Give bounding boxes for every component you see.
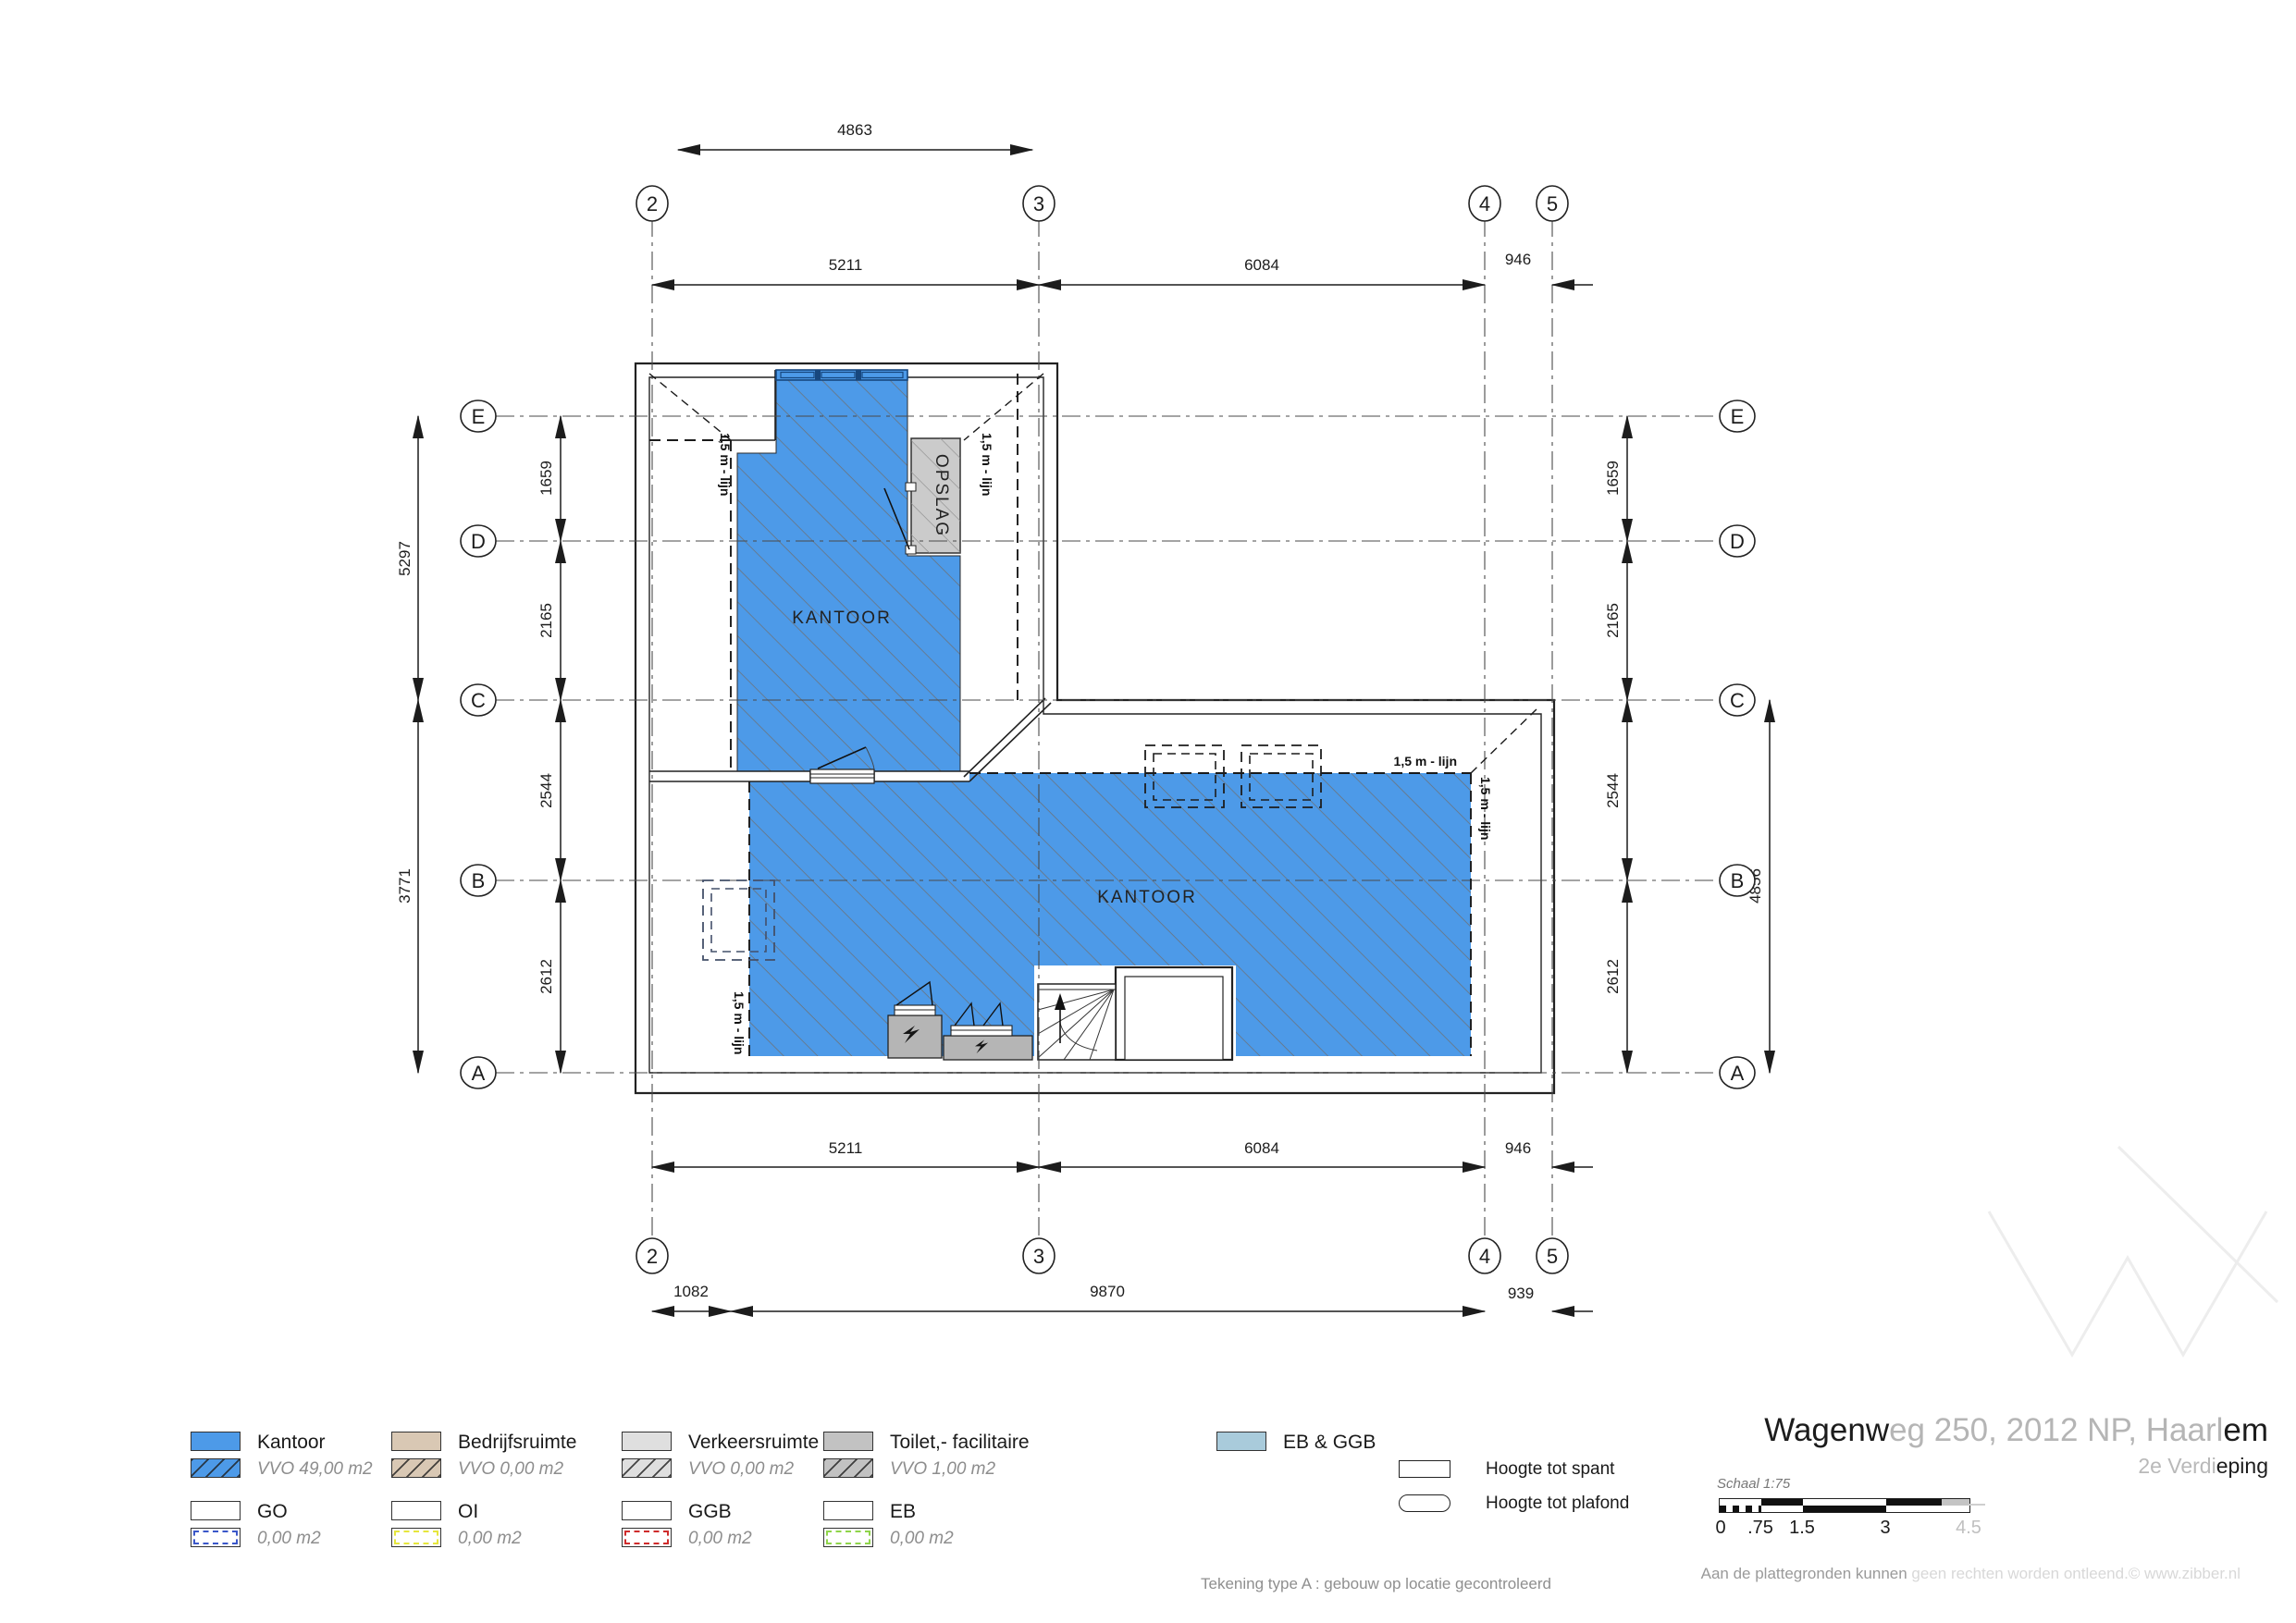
svg-text:5211: 5211 [829,256,863,274]
legend-label-hoogte-spant: Hoogte tot spant [1486,1459,1614,1480]
svg-text:5: 5 [1547,1245,1558,1268]
svg-text:B: B [472,869,486,892]
svg-text:946: 946 [1505,251,1531,268]
svg-text:1659: 1659 [1604,461,1622,496]
svg-text:2612: 2612 [1604,959,1622,994]
stairs [1038,984,1116,1060]
legend-swatch-eb-ggb [1216,1432,1266,1451]
scale-tick: 4.5 [1956,1518,1981,1539]
hoogte-plafond-symbol [1399,1494,1450,1512]
rights-note-part: Aan de plattegronden kunnen [1701,1565,1907,1582]
svg-text:B: B [1731,869,1745,892]
legend-label-kantoor: Kantoor [257,1432,326,1454]
svg-text:6084: 6084 [1244,1139,1279,1157]
legend-value-oi: 0,00 m2 [458,1529,522,1549]
legend-swatch-go [191,1501,241,1520]
line-label-15m: 1,5 m - lijn [1394,754,1457,768]
svg-text:1082: 1082 [673,1283,709,1300]
legend-label-eb-ggb: EB & GGB [1283,1432,1376,1454]
svg-text:5297: 5297 [396,541,414,576]
legend-swatch-go-value [191,1528,241,1547]
svg-text:3771: 3771 [396,868,414,904]
legend-value-toilet-vvo: VVO 1,00 m2 [890,1459,995,1480]
svg-text:9870: 9870 [1090,1283,1125,1300]
hoogte-spant-symbol [1399,1460,1450,1478]
legend-swatch-ggb [622,1501,672,1520]
svg-text:946: 946 [1505,1139,1531,1157]
room-label-opslag: OPSLAG [932,454,951,537]
scale-bar-tail [1969,1504,1985,1506]
legend-value-ggb: 0,00 m2 [688,1529,752,1549]
svg-text:6084: 6084 [1244,256,1279,274]
svg-text:4863: 4863 [837,121,872,139]
title-part: Wagenw [1764,1412,1889,1448]
legend-swatch-kantoor [191,1432,241,1451]
floorplan-page: KANTOOR KANTOOR OPSLAG 1,5 m - lijn 1,5 … [0,0,2296,1623]
legend-swatch-verkeersruimte [622,1432,672,1451]
svg-text:3: 3 [1033,1245,1044,1268]
legend-swatch-ggb-value [622,1528,672,1547]
svg-text:D: D [1730,530,1745,553]
legend-swatch-bedrijfsruimte-vvo [391,1458,441,1478]
legend-label-ggb: GGB [688,1501,732,1523]
legend-label-bedrijfsruimte: Bedrijfsruimte [458,1432,576,1454]
floorplan-drawing: KANTOOR KANTOOR OPSLAG 1,5 m - lijn 1,5 … [0,0,2296,1359]
legend-swatch-eb-value [823,1528,873,1547]
page-title: Wagenweg 250, 2012 NP, Haarlem [1764,1412,2268,1449]
svg-text:2: 2 [647,192,658,215]
svg-text:5211: 5211 [829,1139,863,1157]
legend-label-verkeersruimte: Verkeersruimte [688,1432,819,1454]
legend-swatch-kantoor-vvo [191,1458,241,1478]
scale-label: Schaal 1:75 [1717,1476,1790,1492]
svg-text:2: 2 [647,1245,658,1268]
legend-label-go: GO [257,1501,288,1523]
zibber-watermark [1989,1147,2277,1355]
line-label-15m: 1,5 m - lijn [732,991,747,1054]
room-label-kantoor-lower: KANTOOR [1097,888,1197,907]
title-part: eg 250, 2012 NP, Haarl [1889,1412,2223,1448]
drawing-type-note: Tekening type A : gebouw op locatie geco… [1201,1575,1551,1593]
line-label-15m: 1,5 m - lijn [1478,777,1493,840]
legend-swatch-eb [823,1501,873,1520]
title-part: em [2223,1412,2268,1448]
svg-text:2612: 2612 [537,959,555,994]
svg-text:2165: 2165 [537,603,555,638]
svg-text:939: 939 [1508,1285,1534,1302]
svg-text:C: C [471,689,486,712]
svg-text:4: 4 [1479,1245,1490,1268]
svg-text:2544: 2544 [1604,773,1622,808]
scale-tick: 3 [1880,1518,1890,1539]
legend-label-hoogte-plafond: Hoogte tot plafond [1486,1494,1629,1514]
room-label-kantoor-upper: KANTOOR [792,609,892,628]
legend-value-eb: 0,00 m2 [890,1529,954,1549]
legend-swatch-toilet [823,1432,873,1451]
subtitle-part: eping [2216,1454,2268,1478]
svg-text:2544: 2544 [537,773,555,808]
svg-text:A: A [1731,1062,1745,1085]
rights-note-part: geen rechten worden ontleend. [1907,1565,2129,1582]
svg-text:C: C [1730,689,1745,712]
legend-value-go: 0,00 m2 [257,1529,321,1549]
page-subtitle: 2e Verdieping [2138,1454,2268,1479]
scale-tick: 0 [1715,1518,1725,1539]
svg-text:5: 5 [1547,192,1558,215]
svg-text:E: E [1731,405,1745,428]
stair-core [1034,965,1236,1060]
window-top [776,370,907,380]
legend-swatch-toilet-vvo [823,1458,873,1478]
legend-value-kantoor-vvo: VVO 49,00 m2 [257,1459,373,1480]
svg-text:2165: 2165 [1604,603,1622,638]
legend-swatch-verkeersruimte-vvo [622,1458,672,1478]
subtitle-part: 2e Verdi [2138,1454,2216,1478]
line-label-15m: 1,5 m - lijn [718,433,733,496]
legend-value-bedrijfsruimte-vvo: VVO 0,00 m2 [458,1459,563,1480]
legend-value-verkeersruimte-vvo: VVO 0,00 m2 [688,1459,794,1480]
svg-text:3: 3 [1033,192,1044,215]
legend-swatch-oi [391,1501,441,1520]
legend-label-toilet: Toilet,- facilitaire [890,1432,1030,1454]
scale-tick: 1.5 [1789,1518,1815,1539]
svg-text:E: E [472,405,486,428]
scale-tick: .75 [1747,1518,1773,1539]
rights-note-brand: © www.zibber.nl [2129,1565,2240,1582]
legend-swatch-bedrijfsruimte [391,1432,441,1451]
rights-note: Aan de plattegronden kunnen geen rechten… [1701,1565,2240,1583]
line-label-15m: 1,5 m - lijn [980,433,994,496]
legend-label-eb: EB [890,1501,916,1523]
svg-text:A: A [472,1062,486,1085]
scale-bar [1719,1498,1970,1513]
svg-text:1659: 1659 [537,461,555,496]
svg-text:D: D [471,530,486,553]
svg-text:4: 4 [1479,192,1490,215]
legend-swatch-oi-value [391,1528,441,1547]
legend-label-oi: OI [458,1501,478,1523]
